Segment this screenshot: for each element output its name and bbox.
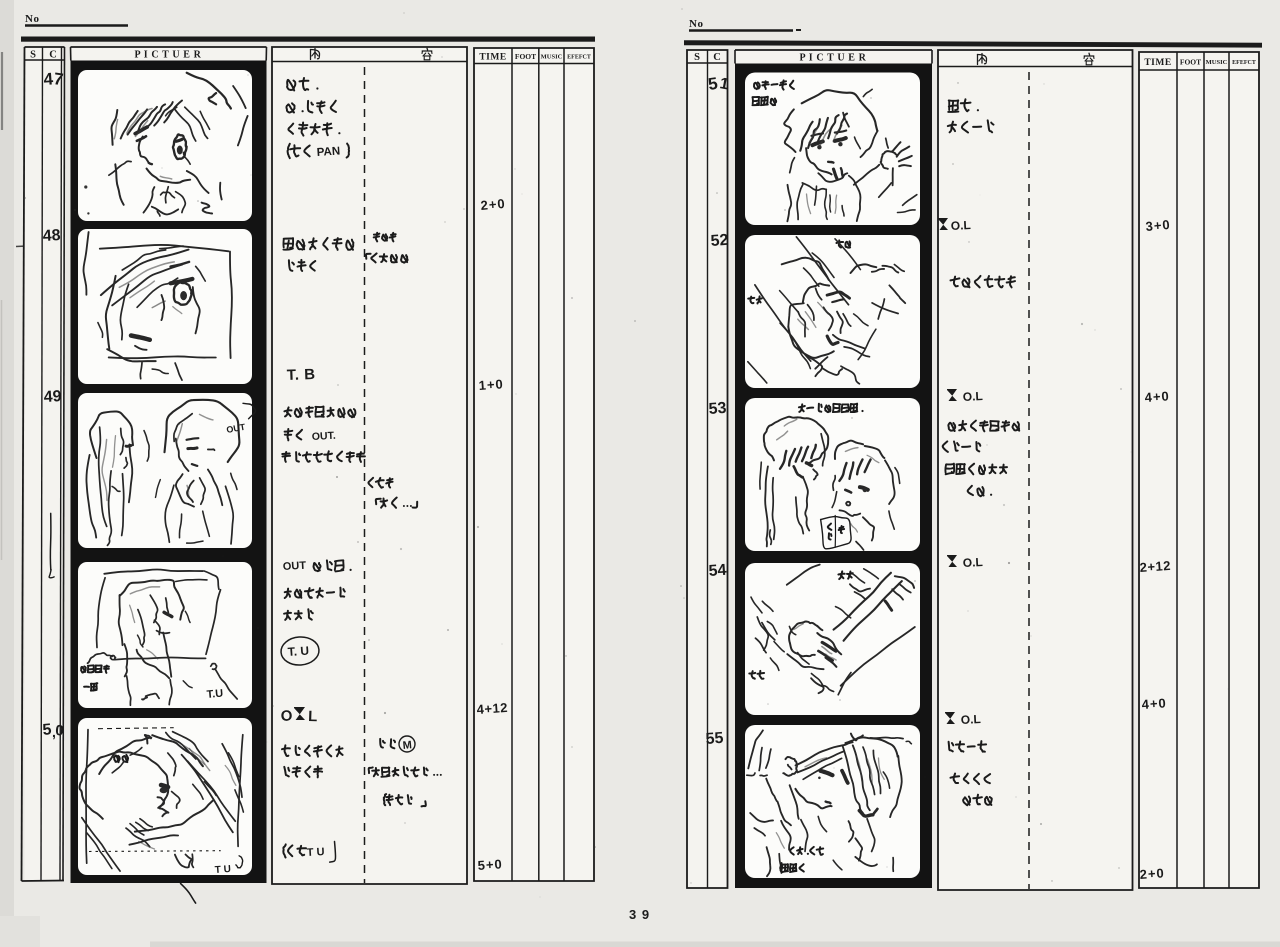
svg-text:P I C T U E R: P I C T U E R [800, 53, 867, 64]
svg-text:L: L [308, 708, 318, 725]
svg-text:T U: T U [214, 864, 231, 876]
svg-text:TIME: TIME [1144, 58, 1171, 68]
svg-text:EFEFCT: EFEFCT [1232, 60, 1256, 66]
svg-text:T.U: T.U [206, 688, 224, 701]
svg-text:O.L: O.L [960, 712, 981, 727]
svg-text:MUSIC: MUSIC [541, 54, 563, 61]
svg-text:4+0: 4+0 [1141, 695, 1167, 712]
svg-text:53: 53 [708, 400, 727, 418]
svg-text:T. B: T. B [287, 366, 316, 384]
svg-text:2+0: 2+0 [480, 196, 506, 213]
svg-text:FOOT: FOOT [515, 52, 536, 61]
svg-text:T U: T U [307, 846, 325, 859]
svg-text:OUT: OUT [283, 560, 307, 573]
svg-text:2+12: 2+12 [1139, 558, 1171, 575]
svg-text:PAN: PAN [316, 145, 340, 159]
svg-text:C: C [49, 50, 57, 61]
svg-text:3 9: 3 9 [629, 907, 650, 922]
svg-text:C: C [713, 52, 721, 63]
svg-text:EFEFCT: EFEFCT [567, 55, 591, 61]
svg-text:O.L: O.L [962, 555, 983, 570]
svg-text:5: 5 [42, 721, 52, 739]
svg-text:M: M [402, 739, 412, 752]
svg-text:52: 52 [710, 232, 729, 250]
svg-text:O.L: O.L [950, 218, 971, 233]
svg-text:O: O [280, 707, 293, 725]
svg-text:4+12: 4+12 [476, 700, 508, 717]
svg-text:49: 49 [43, 388, 62, 406]
svg-text:S: S [694, 52, 700, 63]
svg-text:2+0: 2+0 [1139, 865, 1165, 882]
svg-text:No: No [25, 13, 39, 25]
svg-text:FOOT: FOOT [1180, 58, 1201, 67]
svg-text:MUSIC: MUSIC [1206, 59, 1228, 66]
svg-text:55: 55 [705, 730, 724, 748]
svg-text:T. U: T. U [287, 644, 309, 659]
svg-text:0: 0 [55, 722, 65, 740]
svg-text:3+0: 3+0 [1145, 217, 1171, 234]
svg-text:5+0: 5+0 [477, 856, 503, 873]
svg-text:54: 54 [708, 562, 727, 580]
svg-text:48: 48 [42, 227, 61, 245]
svg-text:TIME: TIME [479, 53, 506, 63]
svg-text:S: S [30, 50, 36, 61]
svg-text:P I C T U E R: P I C T U E R [135, 50, 202, 61]
svg-text:OUT.: OUT. [312, 430, 337, 443]
svg-text:No: No [689, 18, 703, 30]
svg-text:4+0: 4+0 [1144, 388, 1170, 405]
svg-text:O.L: O.L [962, 389, 983, 404]
svg-text:1+0: 1+0 [478, 376, 504, 393]
